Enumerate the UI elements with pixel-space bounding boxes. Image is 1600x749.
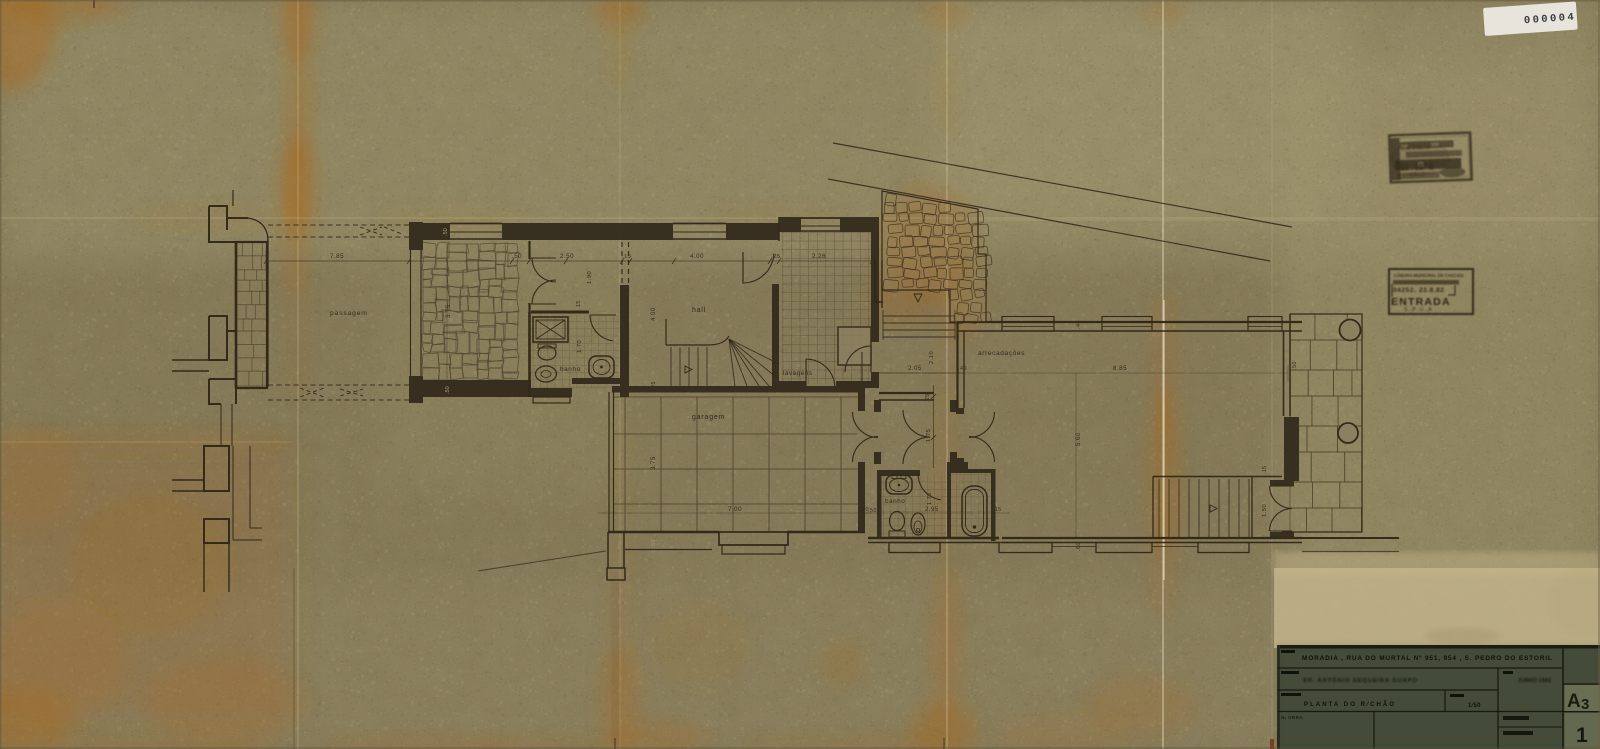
svg-text:1.50: 1.50 <box>1262 504 1268 517</box>
svg-text:.40: .40 <box>958 366 967 372</box>
svg-text:4.00: 4.00 <box>651 307 657 321</box>
svg-text:.50: .50 <box>512 253 522 260</box>
svg-text:.15: .15 <box>576 300 582 309</box>
svg-text:banho: banho <box>885 498 905 505</box>
svg-text:№ OBRA: № OBRA <box>1281 715 1303 720</box>
svg-text:A: A <box>1567 691 1581 712</box>
svg-text:2.50: 2.50 <box>560 253 574 260</box>
svg-text:2.10: 2.10 <box>929 351 935 364</box>
svg-text:S.P.U.A: S.P.U.A <box>1404 307 1433 313</box>
svg-text:SR. ANTÓNIO SEQUEIRA GUAPO: SR. ANTÓNIO SEQUEIRA GUAPO <box>1303 676 1417 684</box>
svg-text:7.85: 7.85 <box>330 253 344 260</box>
svg-text:2.05: 2.05 <box>908 366 922 372</box>
svg-text:garagem: garagem <box>692 414 725 421</box>
svg-text:arrecadaçôes: arrecadaçôes <box>978 350 1025 357</box>
svg-text:3.75: 3.75 <box>446 304 452 318</box>
svg-text:1.75: 1.75 <box>926 429 932 442</box>
svg-text:lavagens: lavagens <box>783 370 813 377</box>
svg-text:.40: .40 <box>1076 320 1082 329</box>
svg-text:C.M.·C*SC·:S: C.M.·C*SC·:S <box>1402 145 1430 151</box>
svg-text:Nº: Nº <box>1515 258 1528 270</box>
svg-text:.25: .25 <box>925 394 931 402</box>
svg-text:.50: .50 <box>445 386 451 394</box>
svg-text:.50: .50 <box>443 228 449 236</box>
svg-text:passagem: passagem <box>330 310 368 317</box>
svg-text:≈􀀀23⁄₾2: ≈􀀀23⁄₾2 <box>1403 172 1426 179</box>
svg-text:1.75: 1.75 <box>927 492 933 505</box>
svg-text:3: 3 <box>1581 696 1590 713</box>
svg-text:1⁄50: 1⁄50 <box>1468 703 1481 709</box>
svg-text:.50: .50 <box>651 539 657 548</box>
svg-text:4.00: 4.00 <box>690 253 704 260</box>
svg-text:MORADIA , RUA DO MURTAL Nº 95: MORADIA , RUA DO MURTAL Nº 951, 954 , S.… <box>1302 655 1552 662</box>
svg-text:1.70: 1.70 <box>577 340 583 353</box>
svg-text:.50: .50 <box>1292 361 1298 370</box>
svg-text:banho: banho <box>560 366 581 373</box>
svg-text:JUNHO 1982: JUNHO 1982 <box>1518 678 1551 684</box>
svg-text:5.60: 5.60 <box>1076 432 1082 446</box>
svg-text:8.85: 8.85 <box>1113 365 1127 372</box>
svg-text:7.00: 7.00 <box>728 506 742 513</box>
svg-text:.15: .15 <box>993 507 1001 513</box>
svg-text:.15: .15 <box>1262 466 1268 474</box>
svg-text:CÂMARA MUNICIPAL DE CASCAIS: CÂMARA MUNICIPAL DE CASCAIS <box>1394 273 1464 278</box>
svg-text:1.90: 1.90 <box>587 271 593 284</box>
svg-text:1: 1 <box>1576 724 1588 747</box>
svg-text:2.95: 2.95 <box>925 507 939 513</box>
svg-text:3.75: 3.75 <box>651 456 657 470</box>
svg-text:.50: .50 <box>860 507 869 513</box>
svg-text:.25: .25 <box>771 254 781 260</box>
svg-text:hall: hall <box>692 307 706 314</box>
svg-text:.15: .15 <box>622 254 632 260</box>
svg-text:04252․ 23.8.82: 04252․ 23.8.82 <box>1393 287 1444 294</box>
